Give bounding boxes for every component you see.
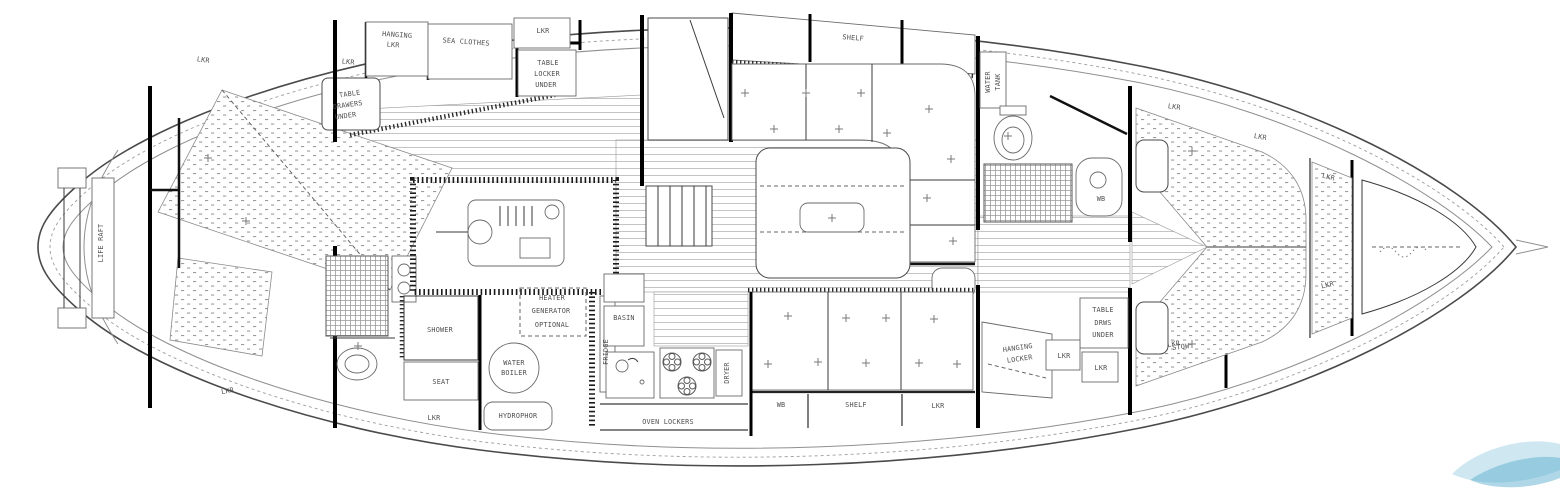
- galley-top-locker: [604, 274, 644, 302]
- label-generator: GENERATOR: [532, 307, 571, 315]
- lower-settee: [750, 292, 973, 390]
- wet-locker: [648, 18, 728, 140]
- label-fridge: FRIDGE: [602, 339, 610, 365]
- wc-hinge: [1000, 106, 1026, 115]
- boat-interior-plan-svg: LIFE RAFTLKRLKRHANGINGLKRSEA CLOTHESLKRT…: [0, 0, 1560, 494]
- wc-bowl-inner: [1002, 127, 1024, 153]
- fwd-seat-port: [1136, 140, 1168, 192]
- label-lkr-saloon: LKR: [932, 402, 946, 410]
- label-dryer: DRYER: [723, 362, 731, 384]
- stove-burner: [663, 353, 681, 371]
- fwd-seat-stbd: [1136, 302, 1168, 354]
- label-lkr-aft-hull: LKR: [221, 386, 236, 396]
- label-basin: BASIN: [613, 314, 634, 322]
- aft-basin-2: [398, 282, 410, 294]
- label-lkr-stern-top: LKR: [196, 55, 211, 65]
- sink-drain: [640, 380, 644, 384]
- fwd-shower-grating: [984, 164, 1072, 222]
- companionway-steps: [646, 186, 712, 246]
- label-table-locker-line2: LOCKER: [534, 70, 560, 78]
- aft-shower-grating: [326, 256, 388, 336]
- basin-box: [604, 306, 644, 346]
- label-lkr-mid-top: LKR: [537, 27, 551, 35]
- label-water-tank-line2: TANK: [994, 73, 1002, 91]
- label-hydrophor: HYDROPHOR: [499, 412, 538, 420]
- sink-bowl: [616, 360, 628, 372]
- swim-ladder-step-bottom: [58, 308, 86, 328]
- label-optional: OPTIONAL: [535, 321, 569, 329]
- fwd-corridor-sole: [978, 216, 1130, 292]
- sea-clothes-box: [428, 24, 512, 79]
- fwd-washbasin: [1090, 172, 1106, 188]
- label-table-locker-line3: UNDER: [535, 81, 557, 89]
- water-boiler: [489, 343, 539, 393]
- label-table-fwd: TABLE: [1092, 306, 1113, 314]
- saloon: [731, 13, 975, 436]
- swim-ladder-step-top: [58, 168, 86, 188]
- label-hanging-lkr-line2: LKR: [386, 41, 400, 50]
- label-wb-head: WB: [1097, 195, 1106, 203]
- aft-basin-1: [398, 264, 410, 276]
- label-drws-under-line2: UNDER: [1092, 331, 1114, 339]
- label-lkr-fwd-2: LKR: [1095, 364, 1109, 372]
- galley-sole: [654, 292, 748, 346]
- label-lkr-fwd-1: LKR: [1058, 352, 1072, 360]
- aft-wc-bowl-inner: [345, 355, 369, 373]
- label-water-boiler-line2: BOILER: [501, 369, 527, 377]
- watermark-logo: [1452, 441, 1560, 487]
- label-lkr-aft-top: LKR: [341, 57, 355, 66]
- label-seat: SEAT: [432, 378, 449, 386]
- label-shower: SHOWER: [427, 326, 453, 334]
- canvas: LIFE RAFTLKRLKRHANGINGLKRSEA CLOTHESLKRT…: [0, 0, 1560, 494]
- label-heater: HEATER: [539, 294, 565, 302]
- bow-stem-fitting: [1516, 240, 1548, 254]
- label-wb-saloon: WB: [777, 401, 786, 409]
- bow-infill-cushion: [1312, 162, 1352, 334]
- label-oven-lockers: OVEN LOCKERS: [642, 418, 694, 426]
- label-water-tank-line1: WATER: [984, 71, 992, 93]
- label-lkr-aft-bottom: LKR: [428, 414, 442, 422]
- stove-burner: [678, 377, 696, 395]
- label-water-boiler-line1: WATER: [503, 359, 525, 367]
- label-drws-under-line1: DRWS: [1094, 319, 1111, 327]
- label-table-locker-line1: TABLE: [537, 59, 558, 67]
- label-life-raft: LIFE RAFT: [97, 224, 105, 263]
- label-shelf-saloon: SHELF: [845, 401, 866, 409]
- stove-burner: [693, 353, 711, 371]
- aft-lower-berth: [170, 258, 272, 356]
